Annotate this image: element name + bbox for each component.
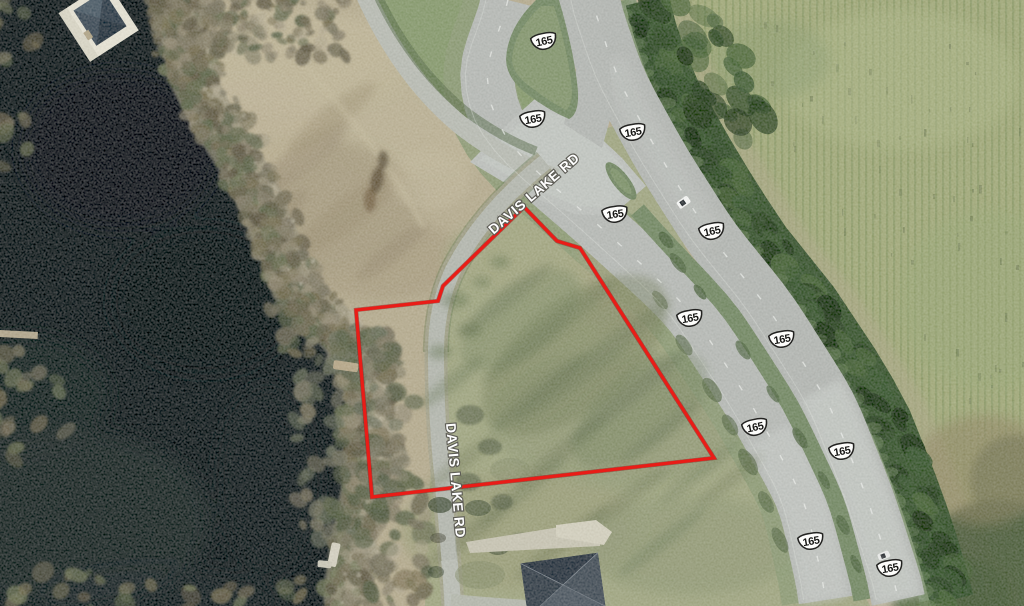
svg-text:165: 165	[606, 208, 625, 222]
